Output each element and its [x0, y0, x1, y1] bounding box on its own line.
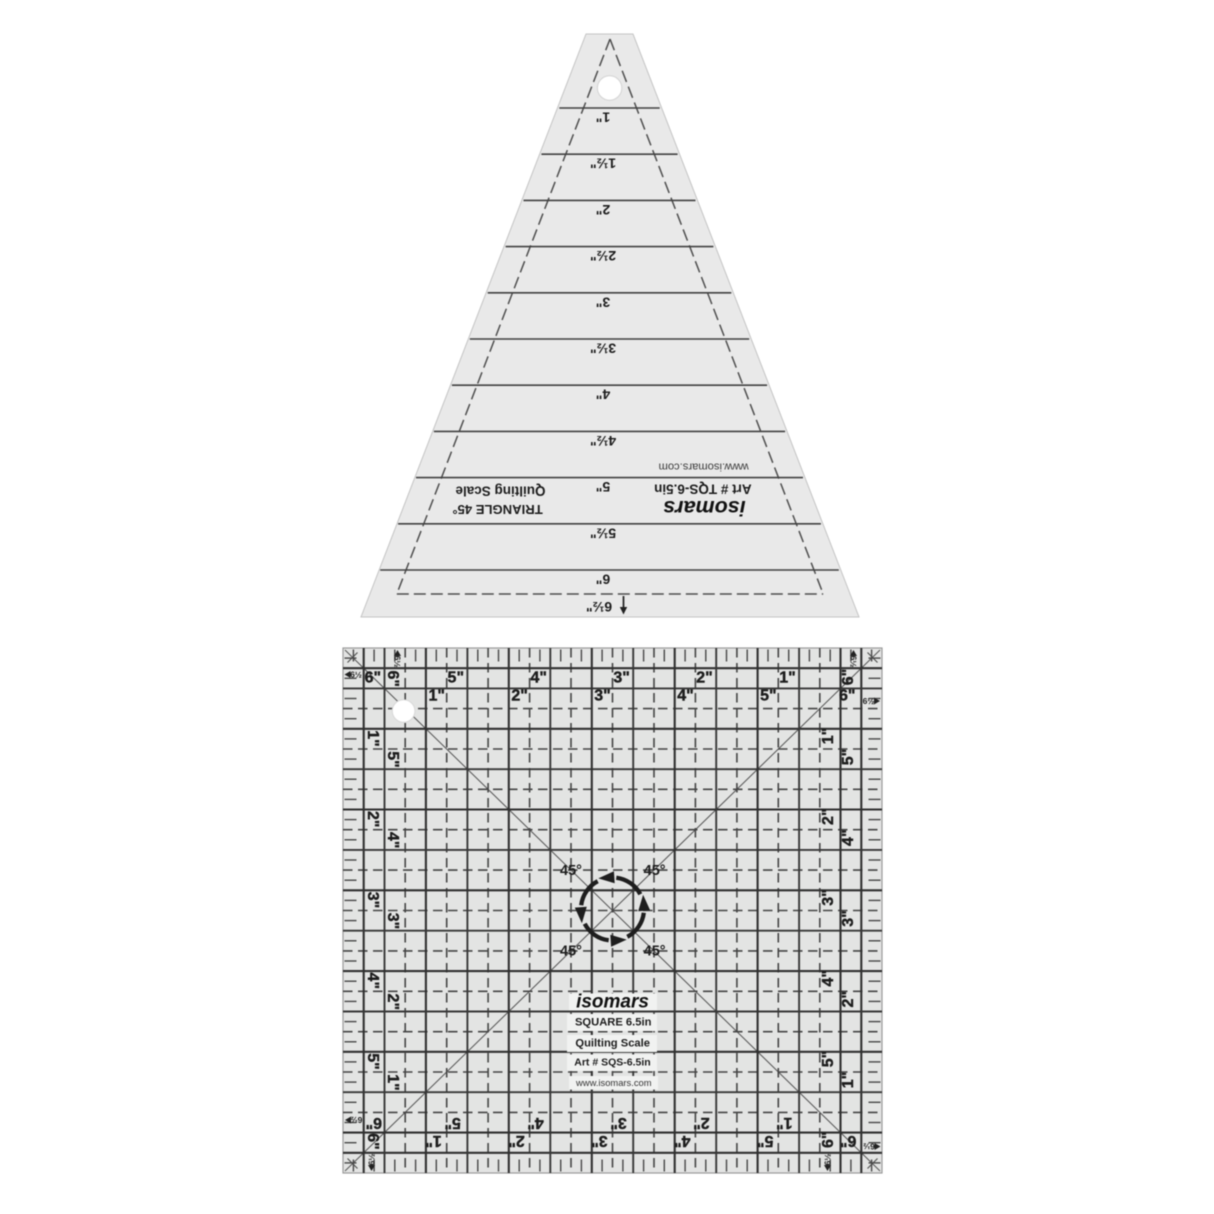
svg-text:45°: 45°	[644, 944, 666, 960]
svg-text:1": 1"	[428, 688, 444, 705]
svg-text:6": 6"	[820, 1132, 837, 1148]
svg-text:2": 2"	[364, 811, 381, 827]
svg-text:4": 4"	[364, 973, 381, 989]
svg-text:6½: 6½	[863, 1142, 875, 1152]
svg-text:2½": 2½"	[590, 248, 616, 264]
svg-text:6½: 6½	[393, 656, 403, 668]
svg-text:5": 5"	[840, 749, 857, 765]
svg-text:5": 5"	[448, 670, 464, 687]
svg-text:3": 3"	[591, 1132, 607, 1149]
svg-text:6": 6"	[840, 669, 857, 685]
svg-text:2": 2"	[511, 688, 527, 705]
svg-text:5": 5"	[596, 479, 610, 495]
svg-text:6": 6"	[366, 1114, 382, 1131]
svg-text:5": 5"	[444, 1114, 460, 1131]
svg-text:3": 3"	[820, 889, 837, 905]
svg-text:2": 2"	[696, 670, 712, 687]
svg-text:5½": 5½"	[590, 525, 616, 541]
svg-text:1": 1"	[596, 110, 610, 126]
svg-text:6": 6"	[364, 1133, 381, 1149]
svg-text:TRIANGLE 45°: TRIANGLE 45°	[452, 502, 542, 517]
svg-text:6½: 6½	[367, 1154, 377, 1166]
svg-text:1": 1"	[776, 1114, 792, 1131]
svg-text:3": 3"	[594, 688, 610, 705]
svg-text:2": 2"	[693, 1114, 709, 1131]
svg-text:3": 3"	[596, 294, 610, 310]
svg-text:4": 4"	[384, 832, 401, 848]
svg-text:5": 5"	[364, 1053, 381, 1069]
svg-text:1": 1"	[820, 728, 837, 744]
svg-text:3": 3"	[840, 910, 857, 926]
svg-text:4": 4"	[840, 829, 857, 845]
svg-text:3": 3"	[610, 1114, 626, 1131]
svg-text:2": 2"	[840, 991, 857, 1007]
svg-text:2": 2"	[384, 994, 401, 1010]
svg-text:4": 4"	[527, 1114, 543, 1131]
svg-text:6": 6"	[365, 670, 381, 687]
svg-text:isomars: isomars	[663, 496, 746, 520]
svg-text:4": 4"	[596, 387, 610, 403]
svg-text:2": 2"	[820, 808, 837, 824]
svg-text:Art # TQS-6.5in: Art # TQS-6.5in	[654, 482, 752, 497]
svg-text:6": 6"	[839, 688, 855, 705]
svg-text:5": 5"	[384, 751, 401, 767]
svg-text:6½: 6½	[823, 1154, 833, 1166]
svg-text:6½": 6½"	[586, 599, 612, 615]
svg-text:5": 5"	[760, 688, 776, 705]
svg-text:4": 4"	[530, 670, 546, 687]
svg-text:1": 1"	[364, 730, 381, 746]
svg-text:isomars: isomars	[576, 992, 649, 1013]
svg-text:Art # SQS-6.5in: Art # SQS-6.5in	[574, 1057, 650, 1069]
svg-text:6½: 6½	[351, 1115, 363, 1125]
svg-text:Quilting Scale: Quilting Scale	[455, 484, 546, 499]
svg-text:3": 3"	[384, 913, 401, 929]
svg-text:1½": 1½"	[590, 156, 616, 172]
svg-text:1": 1"	[384, 1074, 401, 1090]
svg-text:45°: 45°	[644, 863, 666, 879]
svg-text:6½: 6½	[849, 656, 859, 668]
svg-text:6": 6"	[596, 572, 610, 588]
svg-text:4": 4"	[674, 1132, 690, 1149]
svg-text:6": 6"	[384, 670, 401, 686]
svg-text:45°: 45°	[560, 863, 582, 879]
svg-text:5": 5"	[820, 1051, 837, 1067]
svg-text:www.isomars.com: www.isomars.com	[659, 461, 750, 473]
svg-text:6": 6"	[840, 1132, 856, 1149]
svg-text:4": 4"	[677, 688, 693, 705]
svg-text:4½": 4½"	[590, 433, 616, 449]
svg-text:2": 2"	[596, 202, 610, 218]
svg-text:6½: 6½	[863, 696, 875, 706]
svg-text:5": 5"	[757, 1132, 773, 1149]
svg-text:Quilting Scale: Quilting Scale	[575, 1038, 650, 1050]
svg-text:6½: 6½	[350, 670, 362, 680]
svg-text:1": 1"	[425, 1132, 441, 1149]
svg-text:4": 4"	[820, 970, 837, 986]
svg-text:1": 1"	[779, 670, 795, 687]
svg-text:3½": 3½"	[590, 341, 616, 357]
svg-text:www.isomars.com: www.isomars.com	[575, 1077, 652, 1088]
svg-text:3": 3"	[364, 892, 381, 908]
svg-text:45°: 45°	[560, 944, 582, 960]
svg-text:3": 3"	[613, 670, 629, 687]
svg-text:1": 1"	[840, 1072, 857, 1088]
svg-text:SQUARE 6.5in: SQUARE 6.5in	[575, 1017, 652, 1029]
svg-text:2": 2"	[508, 1132, 524, 1149]
